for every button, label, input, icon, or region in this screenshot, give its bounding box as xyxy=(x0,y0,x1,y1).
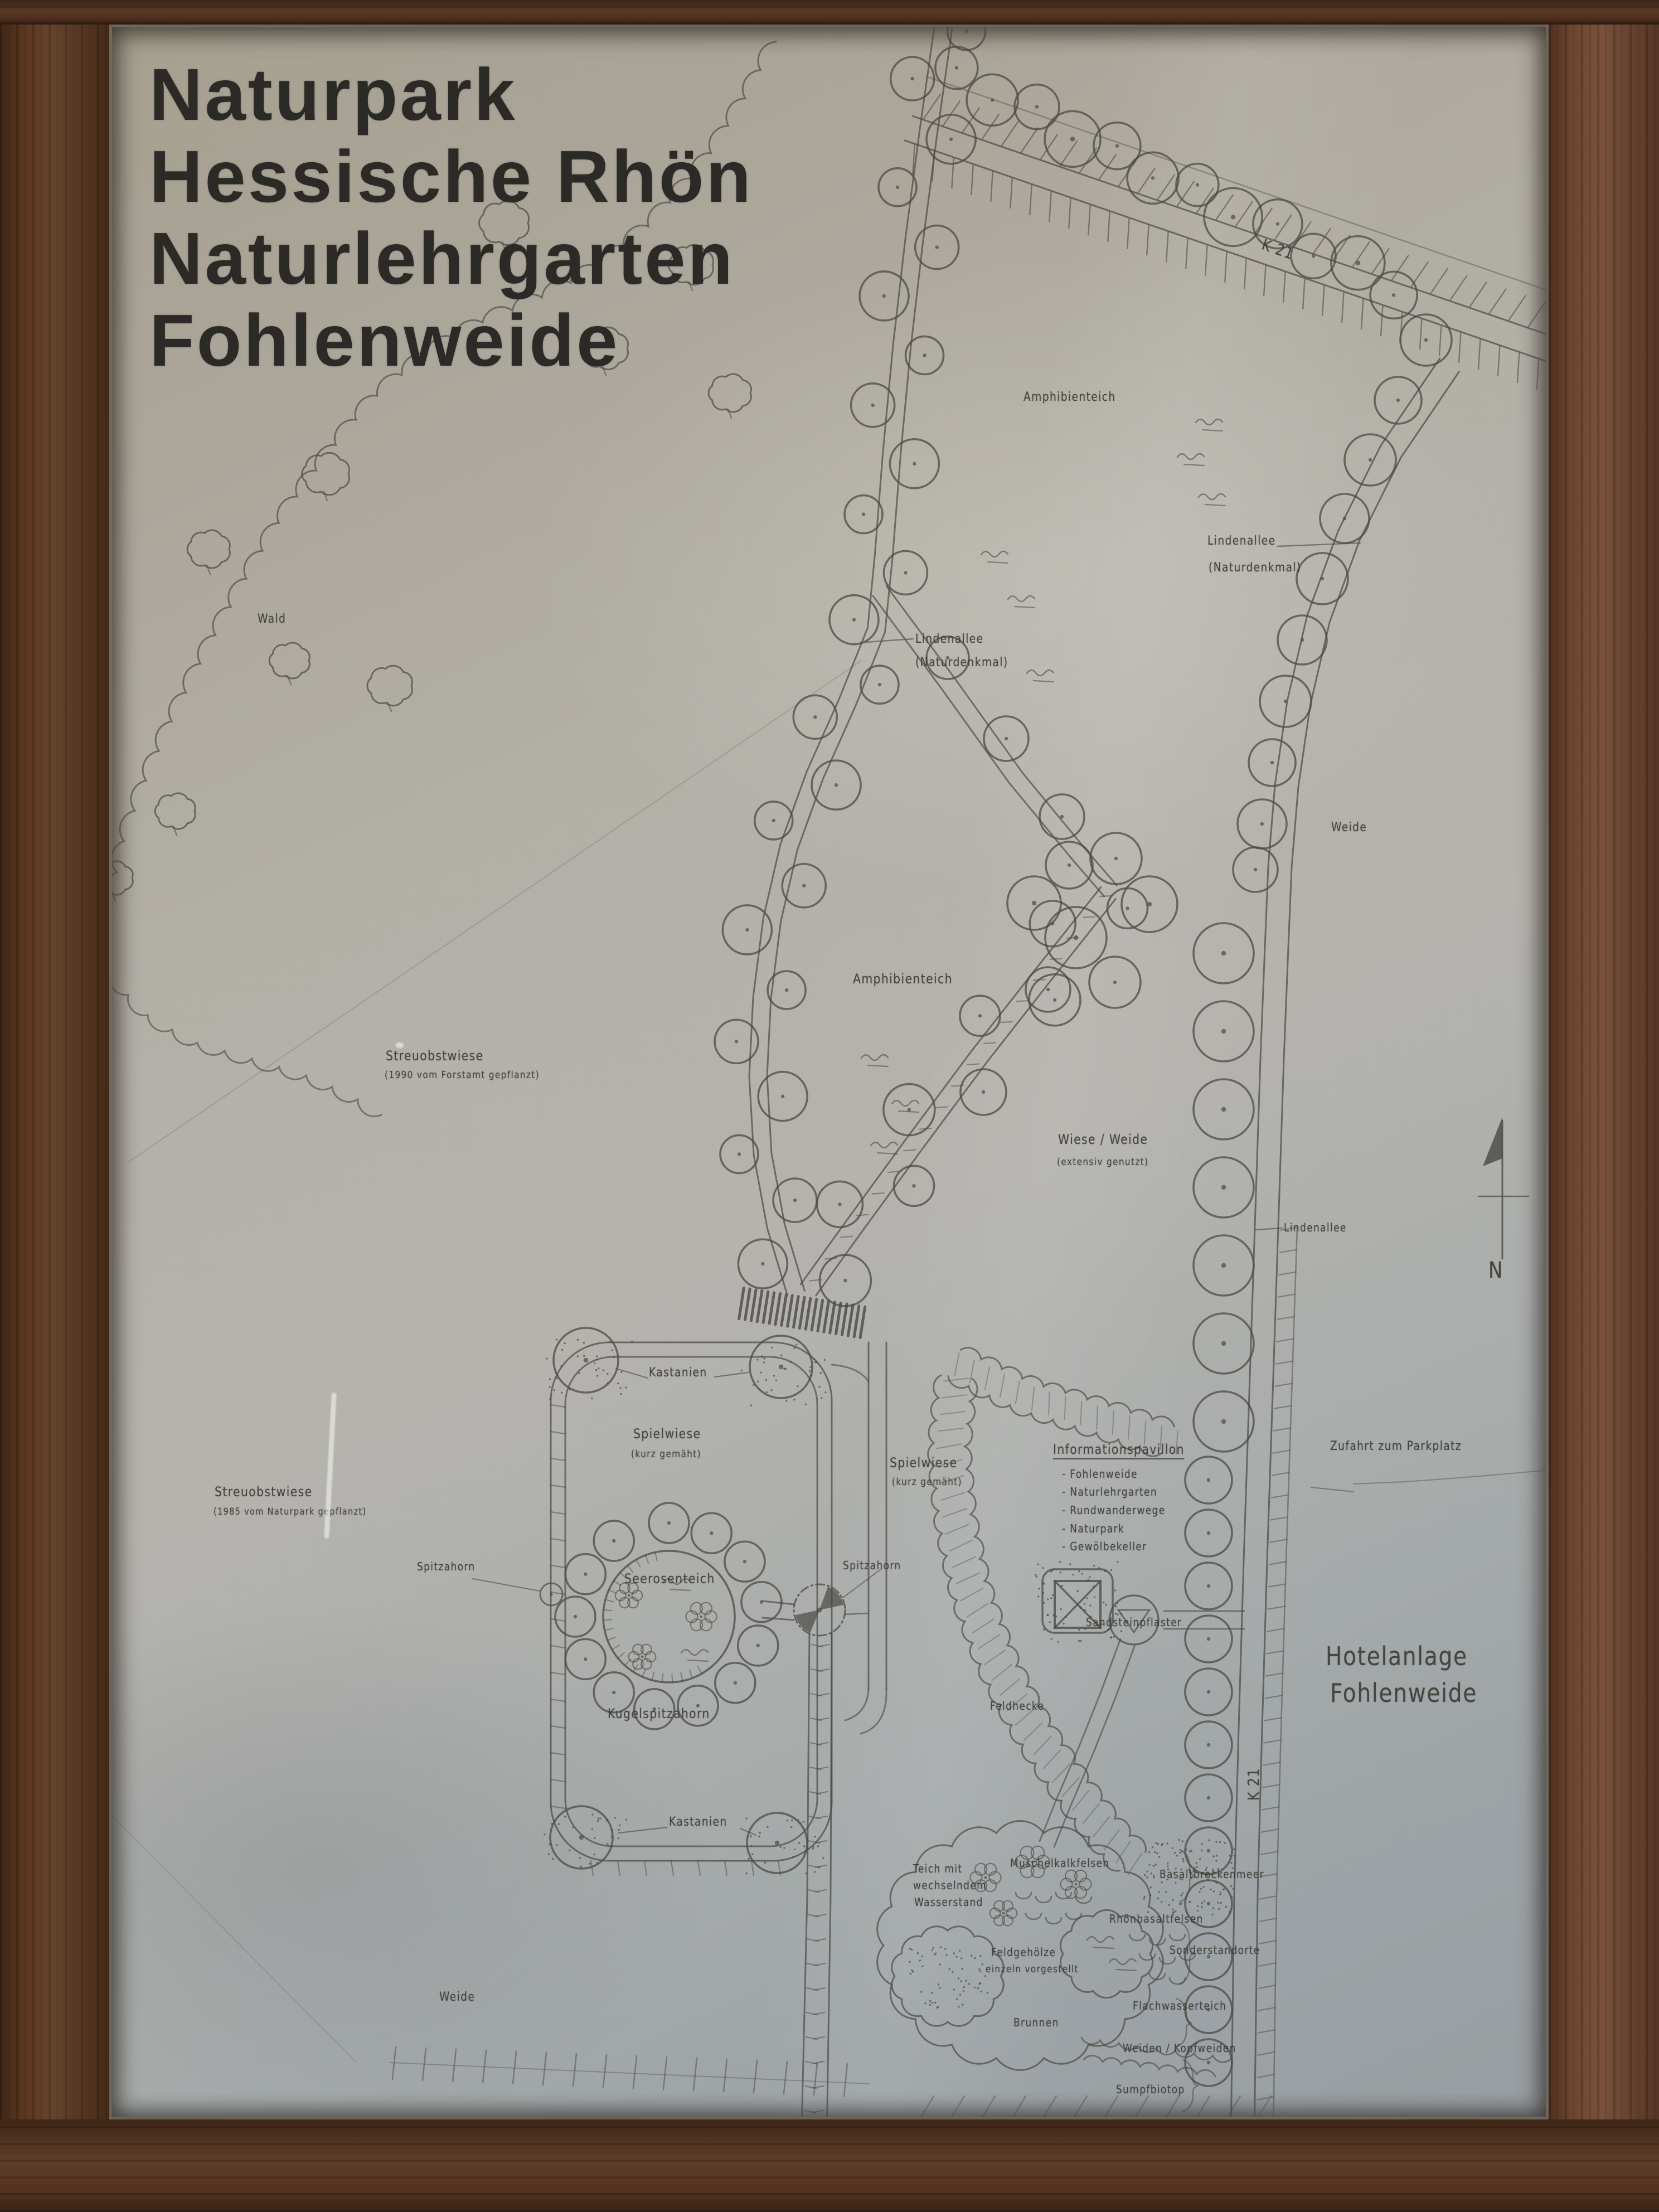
label-amphibienteich-north: Amphibienteich xyxy=(1023,390,1116,404)
label-sumpfbiotop: Sumpfbiotop xyxy=(1116,2083,1185,2096)
label-kurz-gemaeht-left: (kurz gemäht) xyxy=(631,1448,701,1460)
label-lindenallee-west: Lindenallee xyxy=(915,632,984,646)
infopavillon-item: - Gewölbekeller xyxy=(1062,1540,1147,1553)
label-basaltbrockenmeer: Basaltbrockenmeer xyxy=(1160,1867,1264,1881)
label-streuobstwiese-2: Streuobstwiese xyxy=(215,1484,313,1500)
infopavillon-item: - Rundwanderwege xyxy=(1062,1503,1166,1517)
label-lindenallee-east: Lindenallee xyxy=(1284,1221,1347,1234)
label-teich-line2: wechselndem xyxy=(913,1879,987,1892)
paint-chip xyxy=(396,1042,404,1048)
label-muschelkalkfelsen: Muschelkalkfelsen xyxy=(1010,1856,1110,1870)
infopavillon-item: - Naturlehrgarten xyxy=(1062,1485,1157,1498)
label-rhoenbasaltfelsen: Rhönbasaltfelsen xyxy=(1109,1912,1204,1925)
label-kastanien-bottom: Kastanien xyxy=(669,1815,727,1829)
label-sonderstandorte: Sonderstandorte xyxy=(1170,1943,1260,1957)
label-zufahrt-parkplatz: Zufahrt zum Parkplatz xyxy=(1330,1439,1462,1453)
title-line-2: Hessische Rhön xyxy=(149,135,753,217)
label-brunnen: Brunnen xyxy=(1013,2016,1059,2029)
label-sandsteinpflaster: Sandsteinpflaster xyxy=(1086,1616,1182,1629)
label-wald: Wald xyxy=(258,612,286,626)
title-line-3: Naturlehrgarten xyxy=(149,217,753,299)
label-hotelanlage: Hotelanlage xyxy=(1326,1641,1468,1671)
infopavillon-item: - Naturpark xyxy=(1062,1522,1124,1535)
label-spielwiese-right: Spielwiese xyxy=(890,1455,957,1471)
label-hotel-fohlenweide: Fohlenweide xyxy=(1330,1678,1477,1708)
label-lindenallee-northeast: Lindenallee xyxy=(1207,534,1276,548)
title-line-1: Naturpark xyxy=(149,54,753,135)
label-infopavillon-title: Informationspavillon xyxy=(1053,1442,1185,1459)
label-compass-north: N xyxy=(1488,1258,1503,1283)
label-wiese-weide: Wiese / Weide xyxy=(1058,1132,1148,1147)
label-teich-line3: Wasserstand xyxy=(914,1895,983,1909)
label-naturdenkmal-northeast: (Naturdenkmal) xyxy=(1209,561,1302,575)
sign-title: Naturpark Hessische Rhön Naturlehrgarten… xyxy=(149,54,753,381)
label-k21-south: K 21 xyxy=(1244,1768,1263,1801)
label-streuobstwiese-1: Streuobstwiese xyxy=(386,1048,484,1064)
label-weide-east: Weide xyxy=(1331,821,1367,835)
title-line-4: Fohlenweide xyxy=(149,299,753,381)
label-extensiv-genutzt: (extensiv genutzt) xyxy=(1057,1156,1148,1168)
label-amphibienteich-middle: Amphibienteich xyxy=(853,971,953,987)
label-flachwasserteich: Flachwasserteich xyxy=(1133,1999,1226,2012)
label-kurz-gemaeht-right: (kurz gemäht) xyxy=(892,1476,962,1488)
photo-of-park-sign: { "sign": { "title_lines": ["Naturpark",… xyxy=(0,0,1659,2212)
label-kastanien-top: Kastanien xyxy=(649,1366,707,1380)
label-feldhecke: Feldhecke xyxy=(990,1699,1044,1713)
label-streuobstwiese-2-note: (1985 vom Naturpark gepflanzt) xyxy=(214,1506,366,1517)
label-streuobstwiese-1-note: (1990 vom Forstamt gepflanzt) xyxy=(385,1069,540,1081)
label-teich-line1: Teich mit xyxy=(913,1862,962,1875)
label-feldgehoelze-line1: Feldgehölze xyxy=(991,1946,1056,1959)
label-spitzahorn-east: Spitzahorn xyxy=(843,1559,901,1572)
label-kugelspitzahorn: Kugelspitzahorn xyxy=(608,1706,710,1721)
label-naturdenkmal-west: (Naturdenkmal) xyxy=(915,656,1008,670)
label-feldgehoelze-line2: einzeln vorgestellt xyxy=(986,1963,1079,1975)
label-spitzahorn-west: Spitzahorn xyxy=(417,1560,476,1573)
label-weiden-kopfweiden: Weiden / Kopfweiden xyxy=(1123,2041,1236,2055)
infopavillon-item: - Fohlenweide xyxy=(1062,1467,1138,1481)
label-seerosenteich: Seerosenteich xyxy=(624,1571,715,1587)
label-weide-south: Weide xyxy=(439,1990,475,2004)
label-spielwiese-left: Spielwiese xyxy=(633,1426,701,1442)
